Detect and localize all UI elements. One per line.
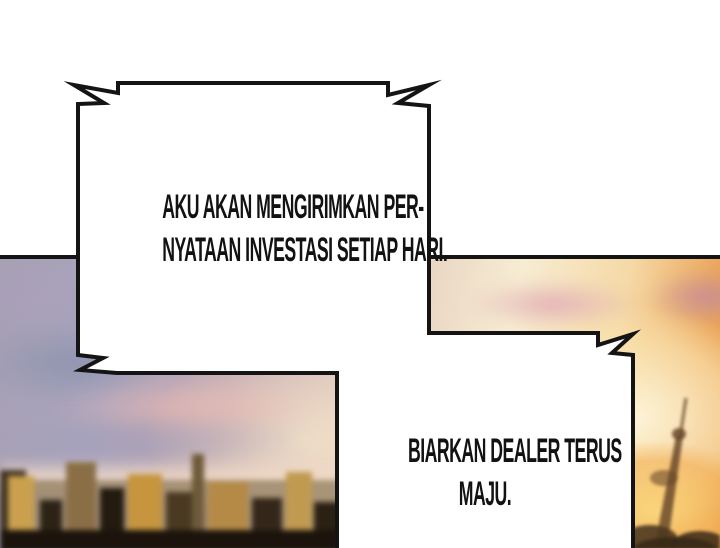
speech-bubble-2-line-2: MAJU. bbox=[408, 473, 562, 516]
speech-bubble-1-line-1: AKU AKAN MENGIRIMKAN PER- bbox=[162, 186, 345, 229]
speech-bubble-2-line-1: BIARKAN DEALER TERUS bbox=[408, 430, 562, 473]
speech-bubble-1-text: AKU AKAN MENGIRIMKAN PER- NYATAAN INVEST… bbox=[78, 186, 429, 272]
speech-bubble-2-text: BIARKAN DEALER TERUS MAJU. bbox=[337, 430, 633, 516]
speech-bubble-1-line-2: NYATAAN INVESTASI SETIAP HARI. bbox=[162, 229, 345, 272]
comic-panel: AKU AKAN MENGIRIMKAN PER- NYATAAN INVEST… bbox=[0, 0, 720, 548]
